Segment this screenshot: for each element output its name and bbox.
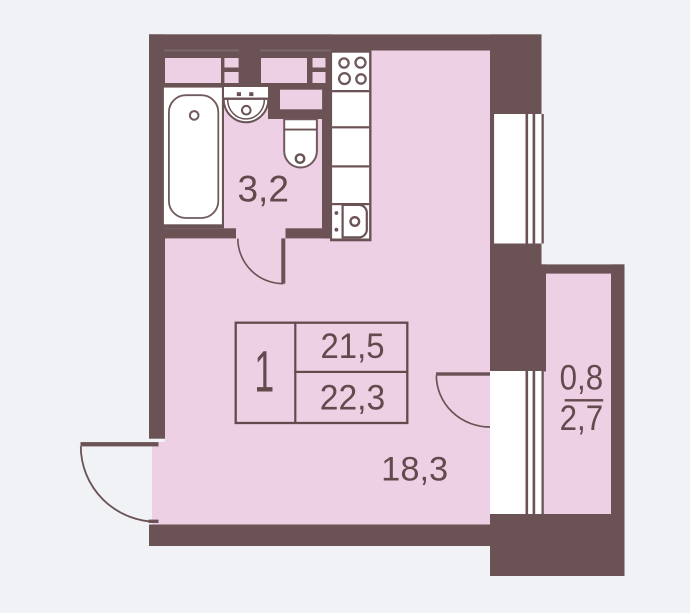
svg-text:3,2: 3,2 <box>237 168 289 210</box>
svg-text:22,3: 22,3 <box>320 378 386 418</box>
svg-text:18,3: 18,3 <box>381 450 448 488</box>
svg-text:0,8: 0,8 <box>560 359 604 398</box>
svg-text:2,7: 2,7 <box>560 399 604 438</box>
svg-text:21,5: 21,5 <box>321 326 385 366</box>
svg-text:1: 1 <box>254 340 274 405</box>
